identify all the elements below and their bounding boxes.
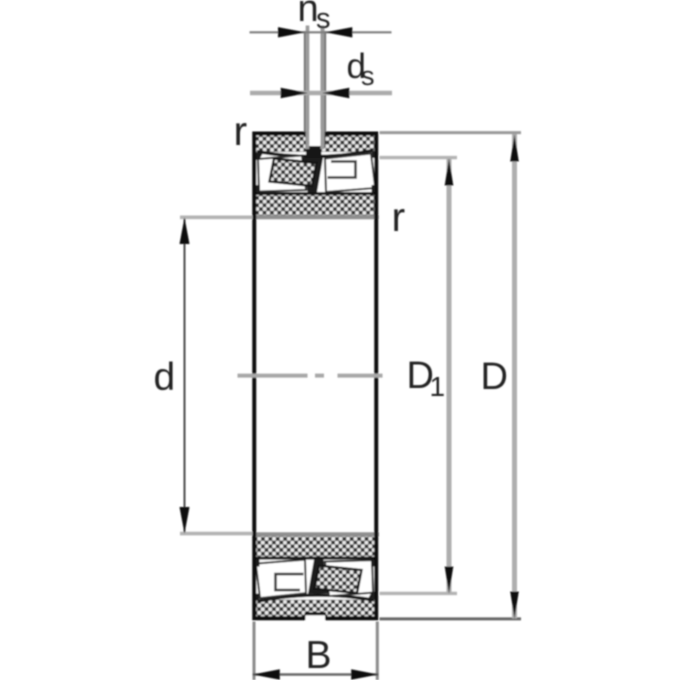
svg-text:s: s [361, 61, 375, 91]
svg-text:D: D [481, 356, 508, 398]
svg-text:d: d [154, 356, 176, 399]
svg-text:s: s [316, 3, 331, 35]
svg-text:r: r [234, 108, 248, 154]
svg-text:r: r [392, 194, 406, 240]
svg-text:1: 1 [430, 371, 446, 402]
svg-text:B: B [306, 634, 332, 677]
